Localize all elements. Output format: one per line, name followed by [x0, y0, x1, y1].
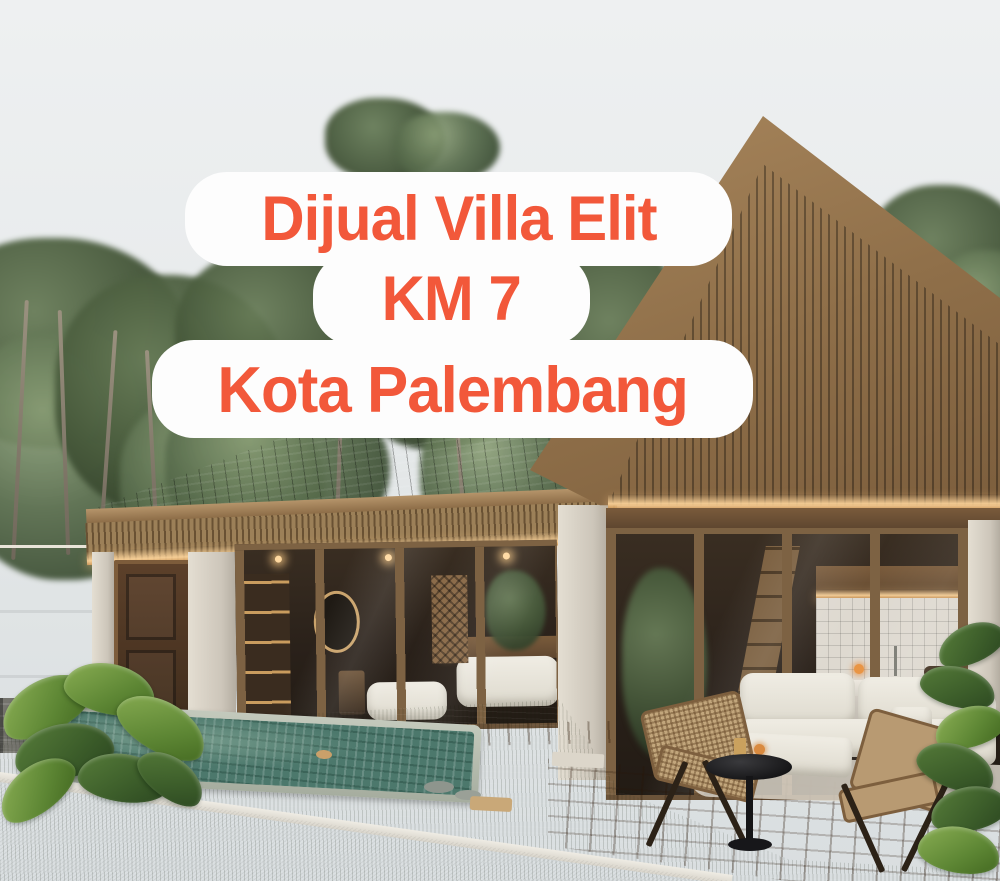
title-bubble-line3: Kota Palembang: [152, 340, 753, 438]
gable-led-strip: [608, 494, 1000, 508]
garden-stone: [424, 781, 454, 793]
title-text-line1: Dijual Villa Elit: [261, 183, 656, 255]
wood-step-pad: [470, 796, 513, 812]
table-stem: [746, 776, 753, 842]
plant-leaf: [915, 820, 1000, 880]
garden-plants-left: [0, 662, 234, 847]
side-table: [706, 752, 796, 862]
door-panel: [126, 574, 176, 640]
villa-promo-image: Dijual Villa Elit KM 7 Kota Palembang: [0, 0, 1000, 881]
garden-plant-right: [900, 615, 1000, 881]
deck-edge-beam: [552, 752, 605, 769]
gable-header-beam: [606, 508, 1000, 528]
pool-float: [315, 749, 331, 759]
table-base: [728, 838, 772, 851]
title-text-line3: Kota Palembang: [217, 352, 688, 427]
title-bubble-line2: KM 7: [313, 252, 590, 346]
title-text-line2: KM 7: [382, 263, 521, 335]
